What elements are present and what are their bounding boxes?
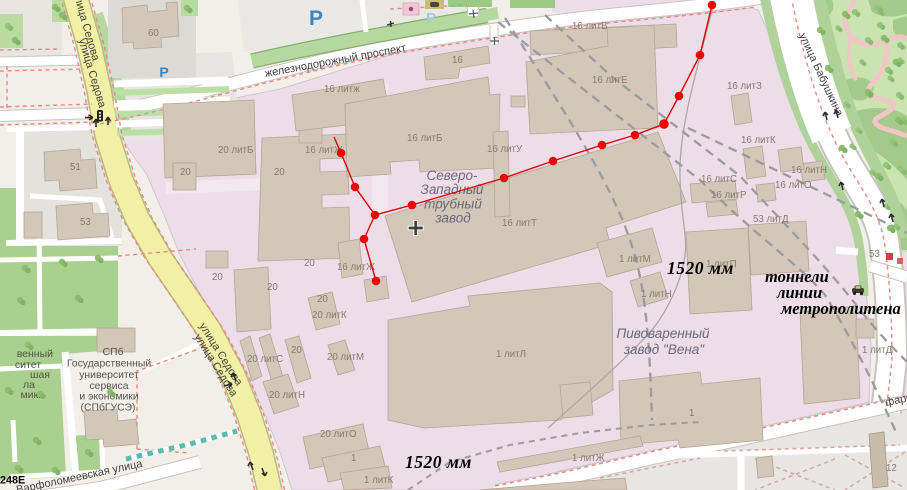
svg-text:P: P: [426, 10, 436, 27]
svg-text:16: 16: [452, 55, 463, 66]
svg-text:P: P: [159, 64, 168, 80]
svg-text:16 литН: 16 литН: [791, 165, 827, 176]
svg-text:16 литТ: 16 литТ: [502, 218, 537, 229]
svg-text:университет: университет: [79, 370, 139, 381]
svg-text:20 литН: 20 литН: [269, 390, 305, 401]
svg-text:16 литС: 16 литС: [701, 174, 737, 185]
svg-text:20: 20: [180, 167, 191, 178]
svg-text:20 литО: 20 литО: [320, 429, 357, 440]
svg-text:20 литК: 20 литК: [312, 310, 347, 321]
svg-text:Западный: Западный: [421, 182, 484, 197]
svg-text:завод: завод: [434, 211, 471, 226]
svg-text:16 литБ: 16 литБ: [407, 133, 442, 144]
svg-text:1: 1: [351, 453, 356, 464]
svg-text:16 литж: 16 литж: [324, 84, 360, 95]
svg-text:P: P: [309, 7, 323, 30]
svg-text:1 литЖ: 1 литЖ: [572, 453, 605, 464]
svg-text:53: 53: [869, 249, 880, 260]
svg-text:(СПбГУСЭ): (СПбГУСЭ): [81, 402, 136, 414]
svg-text:12: 12: [886, 463, 897, 474]
svg-text:1 литД: 1 литД: [862, 345, 893, 356]
svg-text:51: 51: [70, 162, 81, 173]
svg-text:Северо-: Северо-: [426, 168, 478, 183]
svg-text:60: 60: [148, 28, 159, 39]
svg-text:16 литР: 16 литР: [711, 190, 746, 201]
svg-text:1520 мм: 1520 мм: [405, 452, 472, 472]
svg-text:СПб: СПб: [103, 346, 124, 358]
svg-text:1: 1: [689, 408, 694, 419]
svg-text:20 литБ: 20 литБ: [218, 145, 253, 156]
svg-text:20: 20: [274, 167, 285, 178]
svg-text:1520 мм: 1520 мм: [667, 258, 734, 278]
svg-text:20: 20: [212, 272, 223, 283]
svg-text:1 литН: 1 литН: [641, 289, 672, 300]
svg-text:1 литМ: 1 литМ: [619, 254, 651, 265]
svg-text:20 литМ: 20 литМ: [327, 352, 364, 363]
svg-text:1248Е: 1248Е: [0, 475, 25, 487]
svg-text:16 литЕ: 16 литЕ: [592, 75, 628, 86]
svg-text:Государственный: Государственный: [67, 359, 151, 370]
svg-text:53: 53: [80, 217, 91, 228]
svg-text:Пивоваренный: Пивоваренный: [616, 326, 710, 341]
svg-text:20 литС: 20 литС: [247, 354, 283, 365]
svg-text:метрополитена: метрополитена: [780, 299, 901, 318]
svg-text:16 литВ: 16 литВ: [572, 21, 607, 32]
svg-text:53 литД: 53 литД: [753, 214, 789, 225]
svg-text:20: 20: [304, 258, 315, 269]
svg-text:20: 20: [317, 294, 328, 305]
svg-text:16 литО: 16 литО: [775, 180, 812, 191]
svg-text:16 литУ: 16 литУ: [487, 144, 523, 155]
svg-text:16 литЗ: 16 литЗ: [727, 81, 762, 92]
svg-text:20: 20: [267, 282, 278, 293]
svg-text:завод "Вена": завод "Вена": [623, 342, 705, 357]
svg-text:16 литЖ: 16 литЖ: [337, 262, 375, 273]
svg-text:1 литЛ: 1 литЛ: [496, 349, 526, 360]
svg-text:20: 20: [291, 345, 302, 356]
svg-text:16 литК: 16 литК: [741, 135, 776, 146]
svg-text:1 литК: 1 литК: [364, 475, 394, 486]
